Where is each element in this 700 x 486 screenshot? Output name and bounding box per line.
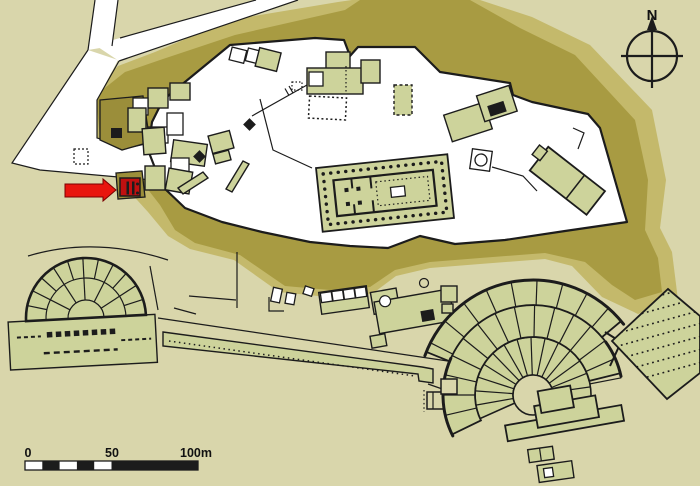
round-altar-base	[470, 149, 493, 172]
scale-tick-50: 50	[105, 446, 119, 460]
site-plan-map: N 0 50 100m	[0, 0, 700, 486]
bastion-marker	[111, 128, 122, 138]
highlighted-building	[120, 178, 140, 196]
scale-tick-0: 0	[25, 446, 32, 460]
altar-foundation	[394, 85, 412, 115]
parthenon	[316, 154, 454, 231]
scale-tick-100: 100m	[180, 446, 212, 460]
